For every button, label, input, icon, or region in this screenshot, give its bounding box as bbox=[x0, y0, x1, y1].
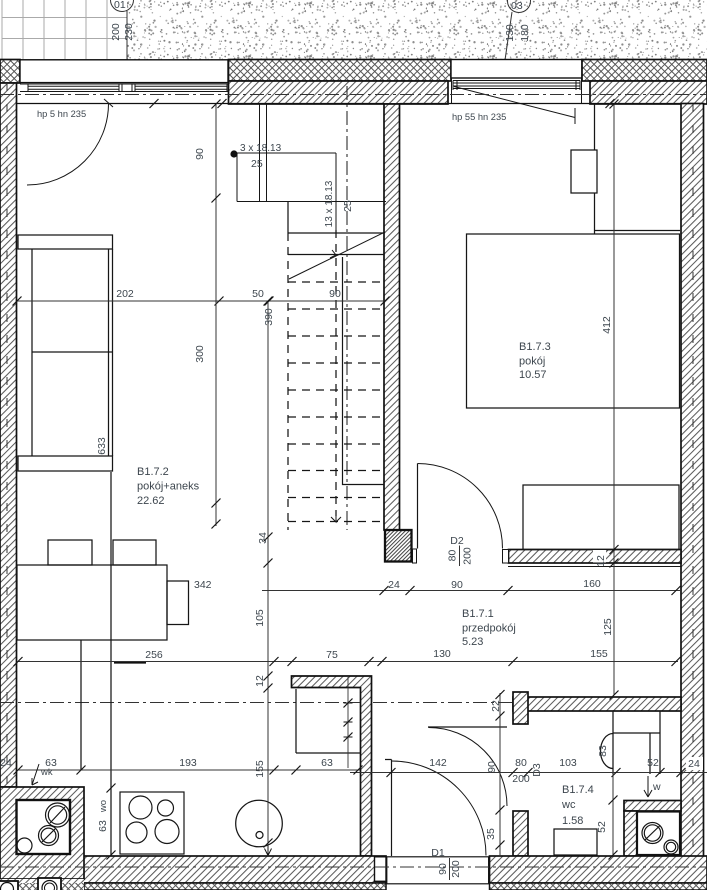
svg-text:w: w bbox=[652, 781, 661, 793]
svg-text:25: 25 bbox=[342, 200, 354, 212]
svg-text:13 x 18.13: 13 x 18.13 bbox=[324, 180, 335, 227]
svg-text:412: 412 bbox=[601, 316, 613, 334]
svg-text:10.57: 10.57 bbox=[519, 369, 547, 381]
svg-text:wc: wc bbox=[561, 799, 576, 811]
svg-text:90: 90 bbox=[451, 579, 463, 591]
svg-text:pokój+aneks: pokój+aneks bbox=[137, 481, 200, 493]
svg-text:125: 125 bbox=[602, 618, 614, 636]
svg-text:1.58: 1.58 bbox=[562, 815, 583, 827]
svg-text:193: 193 bbox=[179, 757, 197, 769]
svg-text:90: 90 bbox=[437, 863, 449, 875]
svg-text:230: 230 bbox=[123, 23, 135, 41]
svg-text:200: 200 bbox=[450, 860, 462, 878]
svg-text:przedpokój: przedpokój bbox=[462, 623, 516, 635]
svg-text:wo: wo bbox=[98, 800, 109, 813]
svg-text:130: 130 bbox=[433, 648, 451, 660]
svg-text:B1.7.1: B1.7.1 bbox=[462, 608, 494, 620]
svg-text:155: 155 bbox=[590, 648, 608, 660]
svg-text:12: 12 bbox=[254, 675, 266, 687]
svg-text:300: 300 bbox=[194, 345, 206, 363]
svg-text:342: 342 bbox=[194, 579, 212, 591]
svg-text:90: 90 bbox=[329, 288, 341, 300]
svg-text:hp 5 hn 235: hp 5 hn 235 bbox=[37, 109, 86, 119]
svg-text:D2: D2 bbox=[450, 535, 464, 547]
svg-text:24: 24 bbox=[388, 579, 400, 591]
svg-text:B1.7.4: B1.7.4 bbox=[562, 784, 594, 796]
svg-text:12: 12 bbox=[595, 555, 607, 567]
svg-text:83: 83 bbox=[597, 745, 609, 757]
svg-text:hp 55 hn 235: hp 55 hn 235 bbox=[452, 112, 506, 122]
svg-text:63: 63 bbox=[97, 820, 109, 832]
svg-text:24: 24 bbox=[688, 758, 700, 770]
svg-text:3 x 18.13: 3 x 18.13 bbox=[240, 143, 282, 154]
svg-text:D1: D1 bbox=[431, 847, 445, 859]
svg-text:63: 63 bbox=[321, 757, 333, 769]
svg-text:80: 80 bbox=[447, 550, 459, 562]
svg-text:25: 25 bbox=[251, 158, 263, 170]
svg-text:34: 34 bbox=[257, 532, 269, 544]
svg-text:200: 200 bbox=[110, 23, 122, 41]
svg-text:52: 52 bbox=[596, 821, 608, 833]
svg-text:50: 50 bbox=[252, 288, 264, 300]
svg-text:180: 180 bbox=[519, 24, 531, 42]
svg-text:B1.7.2: B1.7.2 bbox=[137, 466, 169, 478]
svg-text:130: 130 bbox=[504, 24, 516, 42]
svg-text:103: 103 bbox=[559, 757, 577, 769]
svg-text:75: 75 bbox=[326, 649, 338, 661]
svg-text:24: 24 bbox=[0, 757, 12, 769]
svg-text:105: 105 bbox=[254, 609, 266, 627]
svg-text:90: 90 bbox=[486, 761, 498, 773]
svg-text:22.62: 22.62 bbox=[137, 495, 165, 507]
svg-text:D3: D3 bbox=[531, 763, 543, 777]
svg-text:155: 155 bbox=[254, 760, 266, 778]
svg-text:200: 200 bbox=[462, 547, 474, 565]
svg-text:wk: wk bbox=[40, 767, 53, 778]
svg-text:200: 200 bbox=[512, 773, 530, 785]
svg-text:90: 90 bbox=[194, 148, 206, 160]
svg-text:5.23: 5.23 bbox=[462, 636, 483, 648]
svg-text:633: 633 bbox=[96, 437, 108, 455]
svg-text:pokój: pokój bbox=[519, 356, 545, 368]
svg-text:22: 22 bbox=[490, 700, 502, 712]
svg-text:03: 03 bbox=[511, 0, 523, 12]
svg-text:390: 390 bbox=[263, 308, 275, 326]
svg-text:80: 80 bbox=[515, 757, 527, 769]
svg-text:B1.7.3: B1.7.3 bbox=[519, 341, 551, 353]
svg-text:202: 202 bbox=[116, 288, 134, 300]
svg-text:52: 52 bbox=[647, 757, 659, 769]
svg-text:35: 35 bbox=[485, 828, 497, 840]
svg-text:256: 256 bbox=[145, 649, 163, 661]
svg-text:160: 160 bbox=[583, 578, 601, 590]
svg-text:01: 01 bbox=[114, 0, 126, 11]
svg-text:142: 142 bbox=[429, 757, 447, 769]
